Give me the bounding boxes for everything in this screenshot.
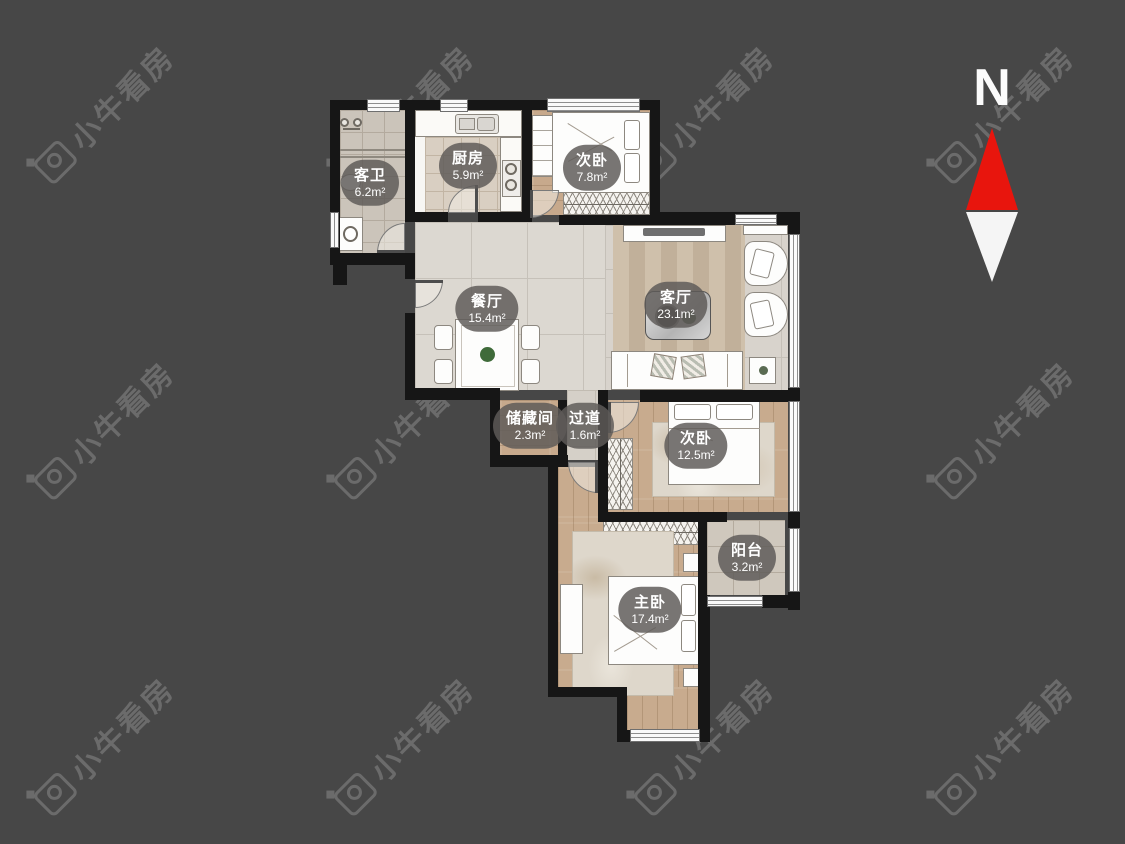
room-name: 阳台: [731, 542, 763, 560]
pillow: [716, 404, 753, 420]
watermark-camera-icon: [331, 770, 378, 817]
wardrobe-rail: [564, 204, 649, 205]
room-label-balcony: 阳台3.2m²: [718, 535, 776, 581]
pillow: [681, 620, 696, 652]
watermark-text: 小牛看房: [59, 666, 183, 790]
room-label-guest-bathroom: 客卫6.2m²: [341, 160, 399, 206]
wall: [405, 265, 415, 279]
window: [735, 214, 777, 225]
wall: [405, 313, 415, 400]
sofa-armrest: [727, 354, 740, 387]
room-area: 1.6m²: [569, 428, 601, 442]
room-name: 厨房: [452, 150, 484, 168]
door-leaf: [475, 185, 478, 213]
pillow: [674, 404, 711, 420]
shower-mixer-icon: [340, 118, 349, 127]
dresser: [560, 584, 583, 654]
door-leaf: [530, 190, 533, 218]
wall: [405, 388, 500, 400]
room-label-dining-room: 餐厅15.4m²: [455, 286, 518, 332]
wardrobe-rail: [620, 439, 621, 509]
watermark-camera-icon: [631, 770, 678, 817]
room-label-bedroom-east: 次卧12.5m²: [664, 423, 727, 469]
watermark-camera-icon: [931, 454, 978, 501]
wall: [559, 215, 660, 225]
wall: [698, 512, 707, 608]
stove-burner: [505, 179, 517, 191]
wall: [548, 460, 558, 697]
window: [789, 401, 800, 512]
shower-mixer-icon: [353, 118, 362, 127]
window: [789, 234, 800, 388]
wall: [548, 687, 627, 697]
watermark-camera-icon: [31, 454, 78, 501]
stove-burner: [505, 163, 517, 175]
door-leaf: [377, 250, 405, 253]
wall: [762, 595, 790, 608]
curtain: [743, 225, 788, 235]
room-name: 储藏间: [506, 410, 554, 428]
watermark: 小牛看房: [27, 666, 183, 822]
window: [707, 596, 763, 607]
sink-basin: [343, 226, 358, 242]
room-area: 3.2m²: [731, 560, 763, 574]
watermark-camera-icon: [931, 770, 978, 817]
pillow: [624, 153, 640, 183]
room-area: 12.5m²: [677, 448, 714, 462]
kitchen-sink-basin: [477, 117, 495, 131]
room-name: 过道: [569, 410, 601, 428]
wall: [405, 110, 415, 222]
room-area: 6.2m²: [354, 185, 386, 199]
room-name: 餐厅: [468, 293, 505, 311]
room-name: 主卧: [631, 594, 668, 612]
pillow: [624, 120, 640, 150]
wall: [788, 512, 800, 528]
sofa-armrest: [615, 354, 628, 387]
watermark: 小牛看房: [27, 34, 183, 190]
room-label-master-bedroom: 主卧17.4m²: [618, 587, 681, 633]
compass-white-south: [966, 212, 1018, 282]
wall: [788, 388, 800, 401]
window: [789, 528, 800, 592]
dining-chair: [434, 325, 453, 350]
compass-red-north: [966, 128, 1018, 210]
watermark-text: 小牛看房: [959, 666, 1083, 790]
window: [330, 212, 339, 248]
watermark: 小牛看房: [927, 350, 1083, 506]
room-area: 7.8m²: [576, 170, 608, 184]
watermark: 小牛看房: [927, 666, 1083, 822]
dining-chair: [521, 325, 540, 350]
dining-chair: [521, 359, 540, 384]
wall: [598, 512, 727, 522]
room-area: 2.3m²: [506, 428, 554, 442]
sofa-pillow: [681, 354, 707, 380]
wall: [650, 212, 800, 225]
wardrobe-hangers: [606, 438, 633, 510]
room-area: 23.1m²: [657, 307, 694, 321]
watermark-text: 小牛看房: [59, 350, 183, 474]
kitchen-sink-basin: [459, 118, 475, 130]
compass-north-label: N: [960, 58, 1024, 118]
wall: [415, 212, 448, 222]
room-name: 次卧: [677, 430, 714, 448]
watermark-text: 小牛看房: [959, 350, 1083, 474]
window: [440, 99, 468, 112]
door-leaf: [415, 280, 443, 283]
door-leaf: [595, 462, 598, 493]
room-name: 客厅: [657, 289, 694, 307]
tv: [643, 228, 705, 236]
floorplan-viewer: 小牛看房 小牛看房 小牛看房 小牛看房 小牛看房 小牛看房 小牛看房 小牛看房 …: [0, 0, 1125, 844]
room-label-kitchen: 厨房5.9m²: [439, 143, 497, 189]
room-area: 5.9m²: [452, 168, 484, 182]
shower-partition: [340, 149, 405, 158]
room-area: 17.4m²: [631, 612, 668, 626]
wall: [698, 595, 710, 742]
room-name: 客卫: [354, 167, 386, 185]
wall: [788, 212, 800, 234]
pillow: [681, 584, 696, 616]
watermark-camera-icon: [31, 770, 78, 817]
window: [547, 98, 640, 112]
compass-needle-icon: [960, 118, 1024, 288]
watermark-camera-icon: [31, 138, 78, 185]
flower-decor: [759, 366, 768, 375]
room-name: 次卧: [576, 152, 608, 170]
watermark-text: 小牛看房: [59, 34, 183, 158]
wardrobe-hangers: [563, 192, 650, 215]
wall: [333, 265, 347, 285]
watermark: 小牛看房: [27, 350, 183, 506]
room-area: 15.4m²: [468, 311, 505, 325]
shower-bar: [343, 128, 360, 130]
wall: [640, 390, 788, 402]
sofa-pillow: [650, 353, 677, 380]
room-label-hallway: 过道1.6m²: [556, 403, 614, 449]
room-label-living-room: 客厅23.1m²: [644, 282, 707, 328]
wall: [330, 253, 415, 265]
wall: [650, 100, 660, 225]
dining-chair: [434, 359, 453, 384]
table-plant: [480, 347, 495, 362]
window: [367, 99, 400, 112]
sofa: [611, 351, 743, 390]
floor-plan: 客卫6.2m² 厨房5.9m² 次卧7.8m² 餐厅15.4m² 客厅23.1m…: [330, 95, 800, 750]
window: [630, 729, 700, 742]
room-label-bedroom-north: 次卧7.8m²: [563, 145, 621, 191]
